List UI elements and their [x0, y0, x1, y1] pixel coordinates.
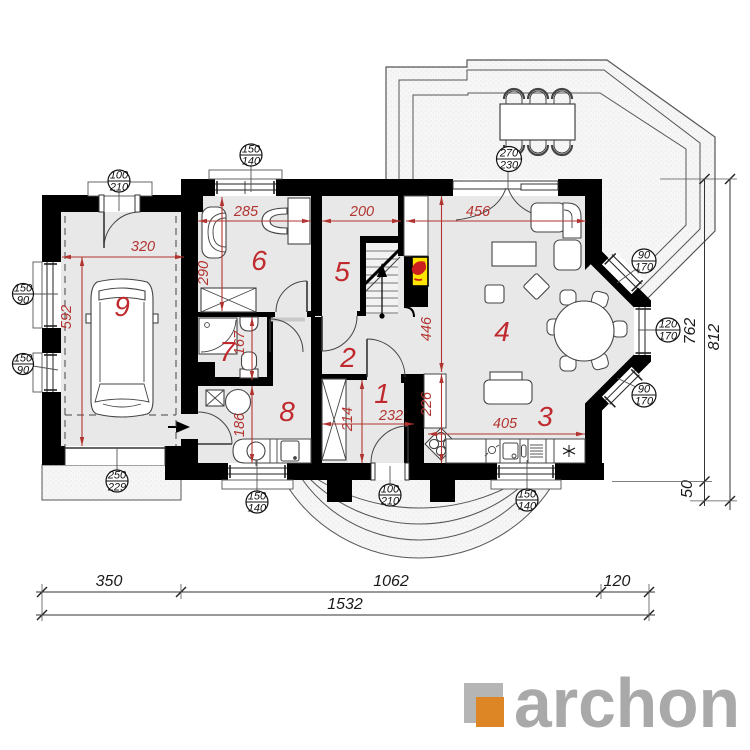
- svg-text:4: 4: [494, 316, 510, 347]
- svg-text:7: 7: [219, 336, 236, 367]
- svg-text:50: 50: [679, 480, 696, 498]
- svg-text:456: 456: [466, 204, 491, 220]
- svg-text:100: 100: [381, 484, 400, 496]
- svg-text:446: 446: [419, 316, 435, 341]
- svg-text:90: 90: [17, 295, 30, 307]
- svg-text:250: 250: [107, 470, 127, 482]
- svg-text:9: 9: [114, 291, 130, 322]
- svg-text:90: 90: [638, 250, 651, 262]
- svg-text:1062: 1062: [373, 573, 409, 590]
- svg-text:100: 100: [110, 170, 129, 182]
- svg-text:6: 6: [251, 245, 267, 276]
- svg-text:3: 3: [537, 401, 553, 432]
- svg-text:170: 170: [659, 331, 678, 343]
- svg-text:90: 90: [638, 384, 651, 396]
- svg-text:762: 762: [682, 318, 699, 345]
- svg-text:120: 120: [604, 573, 631, 590]
- svg-text:140: 140: [518, 501, 537, 513]
- svg-text:230: 230: [499, 160, 519, 172]
- svg-text:812: 812: [706, 324, 723, 351]
- svg-text:405: 405: [493, 416, 518, 432]
- svg-text:350: 350: [96, 573, 123, 590]
- svg-text:229: 229: [107, 482, 126, 494]
- svg-text:214: 214: [340, 407, 356, 432]
- svg-text:285: 285: [233, 204, 259, 220]
- svg-text:592: 592: [59, 305, 75, 329]
- svg-text:170: 170: [635, 396, 654, 408]
- svg-text:1532: 1532: [327, 596, 363, 613]
- svg-text:5: 5: [334, 256, 350, 287]
- svg-text:320: 320: [131, 239, 155, 255]
- svg-text:210: 210: [109, 182, 129, 194]
- svg-text:290: 290: [196, 261, 212, 286]
- svg-text:140: 140: [248, 503, 267, 515]
- svg-text:150: 150: [14, 353, 33, 365]
- svg-text:150: 150: [14, 283, 33, 295]
- svg-text:270: 270: [499, 148, 519, 160]
- svg-text:140: 140: [242, 156, 261, 168]
- svg-text:90: 90: [17, 365, 30, 377]
- svg-text:2: 2: [339, 342, 356, 373]
- svg-text:150: 150: [242, 144, 261, 156]
- svg-text:170: 170: [635, 262, 654, 274]
- svg-text:200: 200: [349, 204, 374, 220]
- svg-text:210: 210: [380, 496, 400, 508]
- svg-text:8: 8: [279, 396, 295, 427]
- svg-text:archon: archon: [514, 664, 740, 742]
- svg-text:226: 226: [419, 391, 435, 417]
- svg-text:150: 150: [518, 489, 537, 501]
- svg-text:120: 120: [659, 319, 678, 331]
- svg-text:186: 186: [232, 412, 248, 437]
- svg-text:232: 232: [378, 408, 403, 424]
- svg-text:1: 1: [374, 378, 390, 409]
- svg-text:150: 150: [248, 491, 267, 503]
